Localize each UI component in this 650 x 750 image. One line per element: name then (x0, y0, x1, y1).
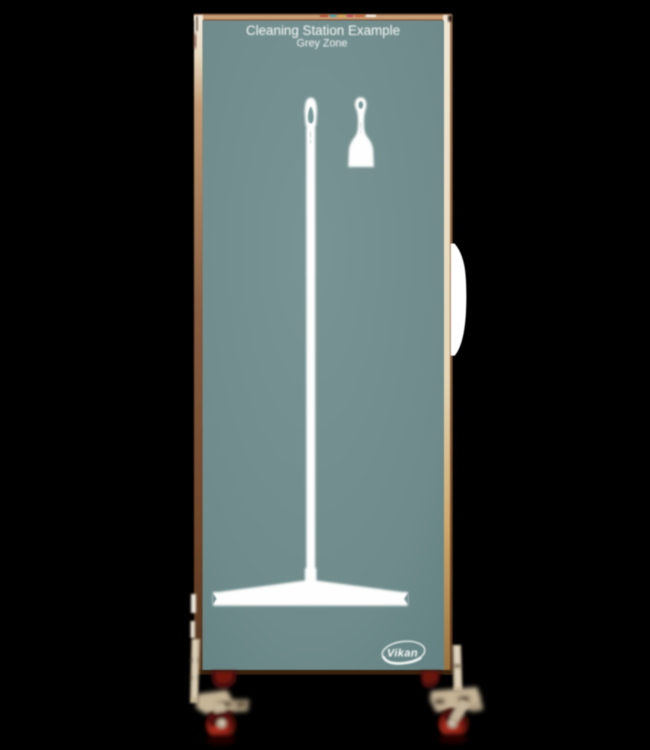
svg-text:Vikan: Vikan (387, 648, 418, 660)
svg-text:Grey Zone: Grey Zone (296, 37, 347, 49)
svg-text:Cleaning Station Example: Cleaning Station Example (246, 23, 400, 38)
